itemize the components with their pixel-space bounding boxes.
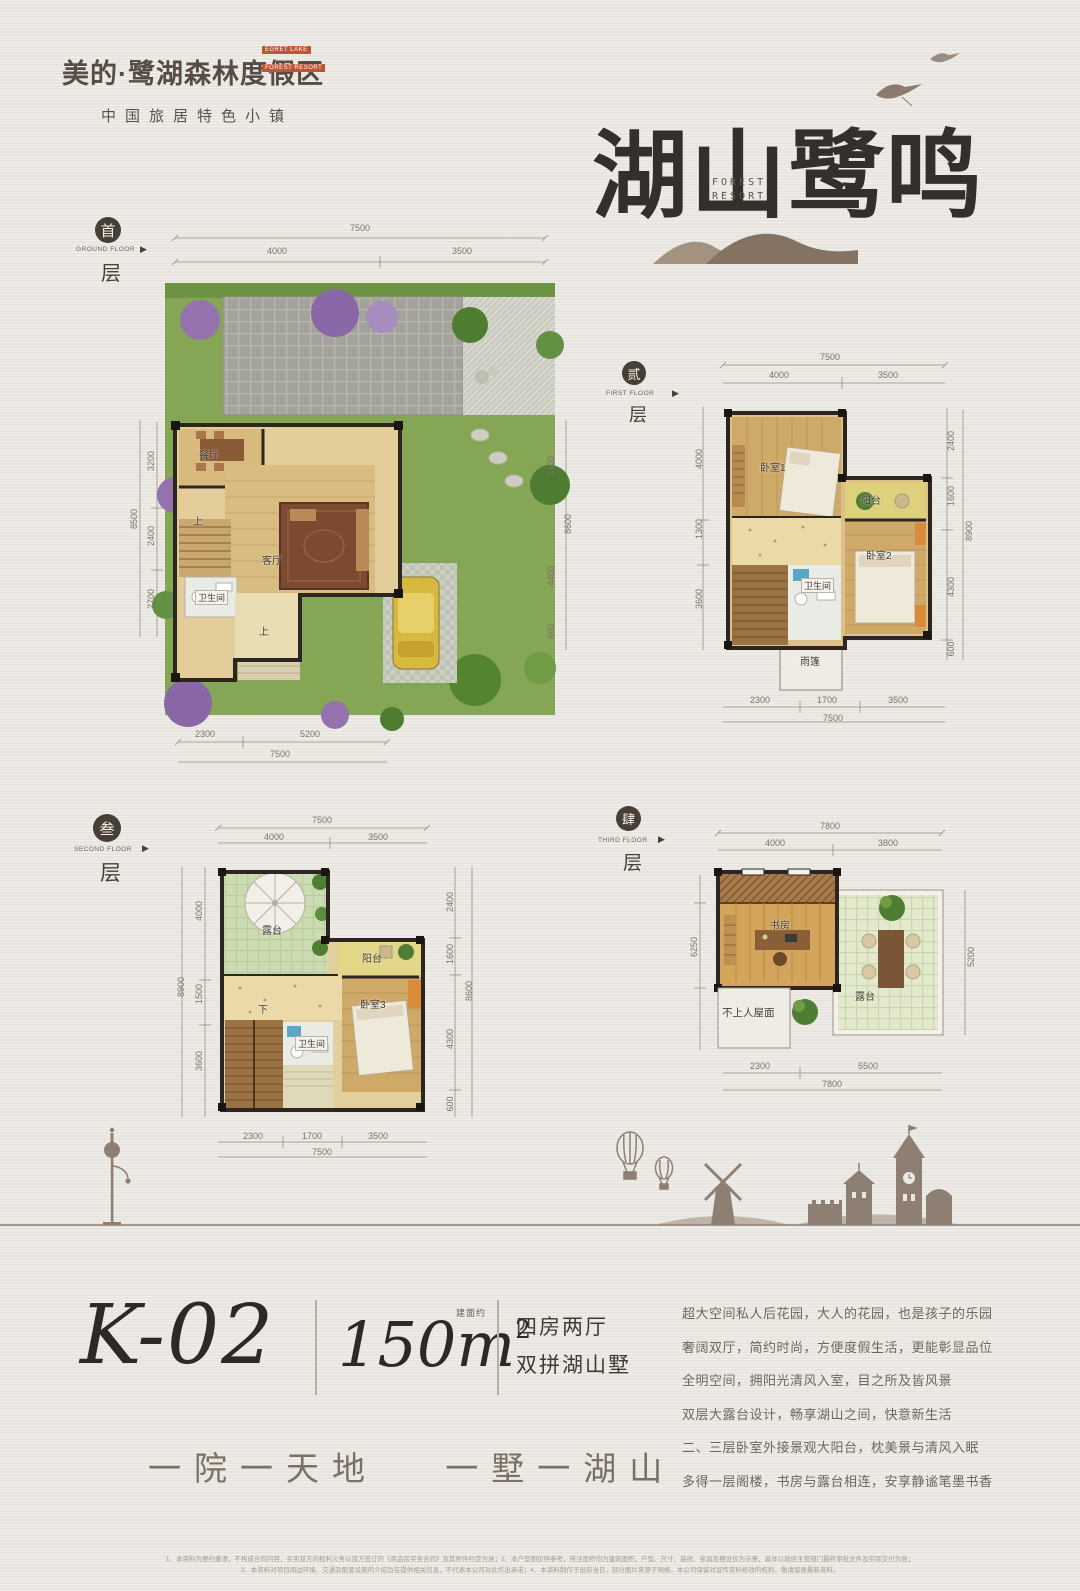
brand-badge: EGRET LAKE FOREST RESORT (262, 38, 342, 74)
dim-label: 7500 (810, 352, 850, 362)
mountains-illustration (648, 212, 863, 267)
dim-label: 3600 (194, 1041, 204, 1081)
dim-label: 7500 (340, 223, 380, 233)
dim-label: 1600 (445, 934, 455, 974)
dim-label: 600 (946, 629, 956, 669)
dim-label: 2400 (445, 882, 455, 922)
brand-logo: EGRET LAKE FOREST RESORT 美的·鹭湖森林度假区 中国旅居… (62, 52, 332, 126)
unit-layout-line1: 四房两厅 (516, 1308, 631, 1346)
room-label-terrace: 露台 (855, 988, 875, 1003)
dim-label: 6250 (689, 927, 699, 967)
dim-label: 600 (445, 1084, 455, 1124)
dim-label: 1700 (807, 695, 847, 705)
divider (497, 1300, 499, 1395)
brand-badge-line2: FOREST RESORT (262, 64, 325, 72)
skyline-illustration (0, 1120, 1080, 1235)
dim-label: 5500 (848, 1061, 888, 1071)
floor3-number: 叁 (99, 818, 114, 839)
floor3-number-badge: 叁 (93, 814, 121, 842)
floor1-number: 首 (100, 220, 115, 241)
unit-area: 建面约 150m2 (338, 1308, 531, 1381)
unit-code: K-02 (80, 1288, 275, 1383)
floor2-number-badge: 贰 (622, 361, 646, 385)
dim-label: 8500 (129, 499, 139, 539)
floor2-arrow-icon: ▶ (672, 388, 679, 399)
room-label-balcony: 阳台 (362, 950, 382, 965)
dim-label: 4300 (445, 1019, 455, 1059)
dim-label: 8600 (464, 971, 474, 1011)
balloon-icon (617, 1132, 673, 1189)
description-line: 奢阔双厅，简约时尚，方便度假生活，更能彰显品位 (682, 1331, 1022, 1365)
poster-page: EGRET LAKE FOREST RESORT 美的·鹭湖森林度假区 中国旅居… (0, 0, 1080, 1591)
room-label-balcony: 阳台 (861, 492, 881, 507)
floor2-number: 贰 (627, 364, 640, 383)
dim-label: 2300 (185, 729, 225, 739)
dim-label: 5200 (966, 937, 976, 977)
room-label-roof: 不上人屋面 (722, 1005, 775, 1020)
dim-label: 7500 (302, 815, 342, 825)
room-label-dining: 餐厅 (199, 447, 219, 462)
room-label-living: 客厅 (262, 552, 282, 567)
room-label-bedroom3: 卧室3 (360, 996, 386, 1011)
dim-label: 7800 (812, 1079, 852, 1089)
dim-label: 4000 (254, 832, 294, 842)
dim-label: 8900 (964, 511, 974, 551)
dim-label: 4000 (194, 891, 204, 931)
dim-label: 2300 (740, 1061, 780, 1071)
unit-layout-line2: 双拼湖山墅 (516, 1346, 631, 1384)
disclaimer: 1、本资料为要约邀请，不构成合同内容，买卖双方的权利义务以双方签订的《商品房买卖… (60, 1554, 1020, 1576)
dim-label: 3500 (878, 695, 918, 705)
floor4-number: 肆 (622, 809, 635, 828)
floor3-en-label: SECOND FLOOR (74, 846, 132, 853)
floor4-en-label: THIRD FLOOR (598, 837, 648, 844)
disclaimer-line1: 1、本资料为要约邀请，不构成合同内容，买卖双方的权利义务以双方签订的《商品房买卖… (60, 1554, 1020, 1565)
room-label-bath: 卫生间 (295, 1036, 328, 1051)
room-label-canopy: 雨篷 (800, 653, 820, 668)
dim-label: 8600 (563, 504, 573, 544)
dim-label: 7500 (813, 713, 853, 723)
unit-area-note: 建面约 (456, 1306, 486, 1319)
dim-label: 2400 (146, 516, 156, 556)
dim-label: 2400 (946, 421, 956, 461)
dim-label: 5200 (290, 729, 330, 739)
floor3-arrow-icon: ▶ (142, 843, 149, 854)
floor-plan-third-graphic (680, 820, 990, 1105)
description-paragraph: 超大空间私人后花园，大人的花园，也是孩子的乐园 奢阔双厅，简约时尚，方便度假生活… (682, 1297, 1022, 1498)
room-label-terrace: 露台 (262, 922, 282, 937)
floor-plan-first-graphic (695, 355, 985, 735)
dim-label: 3300 (546, 446, 556, 486)
floor2-suffix: 层 (629, 401, 647, 427)
dim-label: 2300 (740, 695, 780, 705)
floor-plan-second-graphic (170, 818, 490, 1168)
dim-label: 600 (546, 611, 556, 651)
dim-label: 3500 (868, 370, 908, 380)
dim-label: 7800 (810, 821, 850, 831)
dim-label: 4400 (546, 556, 556, 596)
dim-label: 3500 (358, 832, 398, 842)
stairs-down-label: 下 (258, 1001, 268, 1016)
divider (315, 1300, 317, 1395)
floor1-suffix: 层 (101, 257, 121, 286)
floor4-suffix: 层 (623, 848, 642, 875)
slogan: 一院一天地 一墅一湖山 (148, 1442, 675, 1490)
floor4-number-badge: 肆 (616, 806, 641, 831)
street-lamp-icon (103, 1128, 131, 1225)
floor1-en-label: GROUND FLOOR (76, 246, 135, 253)
dim-label: 4000 (257, 246, 297, 256)
description-line: 全明空间，拥阳光清风入室，目之所及皆风景 (682, 1364, 1022, 1398)
windmill-icon (705, 1164, 741, 1225)
floor3-suffix: 层 (100, 857, 121, 887)
floor2-en-label: FIRST FLOOR (606, 390, 654, 397)
dim-label: 1300 (694, 509, 704, 549)
dim-label: 1600 (946, 476, 956, 516)
stairs-up-label: 上 (259, 623, 269, 638)
dim-label: 3800 (868, 838, 908, 848)
room-label-study: 书房 (770, 917, 790, 932)
description-line: 二、三层卧室外接景观大阳台，枕美景与清风入眠 (682, 1431, 1022, 1465)
dim-label: 4000 (759, 370, 799, 380)
dim-label: 2700 (146, 579, 156, 619)
hero-subtitle-line1: FOREST (712, 176, 766, 190)
brand-badge-line1: EGRET LAKE (262, 46, 311, 54)
dim-label: 4000 (755, 838, 795, 848)
floor4-arrow-icon: ▶ (658, 834, 665, 845)
floor1-number-badge: 首 (95, 217, 121, 243)
dim-label: 4000 (694, 439, 704, 479)
dim-label: 3200 (146, 441, 156, 481)
room-label-bath: 卫生间 (195, 590, 228, 605)
castle-icon (808, 1125, 952, 1225)
dim-label: 3600 (694, 579, 704, 619)
dim-label: 8900 (176, 967, 186, 1007)
description-line: 双层大露台设计，畅享湖山之间，快意新生活 (682, 1398, 1022, 1432)
dim-label: 7500 (260, 749, 300, 759)
hero-subtitle: FOREST RESORT (712, 176, 766, 204)
room-label-bath: 卫生间 (801, 578, 834, 593)
dim-label: 1500 (194, 974, 204, 1014)
disclaimer-line2: 3、本资料对项目周边环境、交通及配套设施的介绍旨在提供相关信息，不代表本公司对此… (60, 1565, 1020, 1576)
floor-plan-ground-graphic (130, 225, 580, 770)
room-label-bedroom2: 卧室2 (866, 547, 892, 562)
stairs-up-label: 上 (193, 513, 203, 528)
description-line: 超大空间私人后花园，大人的花园，也是孩子的乐园 (682, 1297, 1022, 1331)
cranes-icon (872, 45, 972, 115)
dim-label: 4300 (946, 567, 956, 607)
unit-layout: 四房两厅 双拼湖山墅 (516, 1308, 631, 1384)
hero-subtitle-line2: RESORT (712, 190, 766, 204)
room-label-bedroom1: 卧室1 (760, 459, 786, 474)
dim-label: 3500 (442, 246, 482, 256)
unit-area-value: 150m (338, 1308, 515, 1381)
brand-tagline: 中国旅居特色小镇 (62, 105, 332, 126)
description-line: 多得一层阁楼，书房与露台相连，安享静谧笔墨书香 (682, 1465, 1022, 1499)
